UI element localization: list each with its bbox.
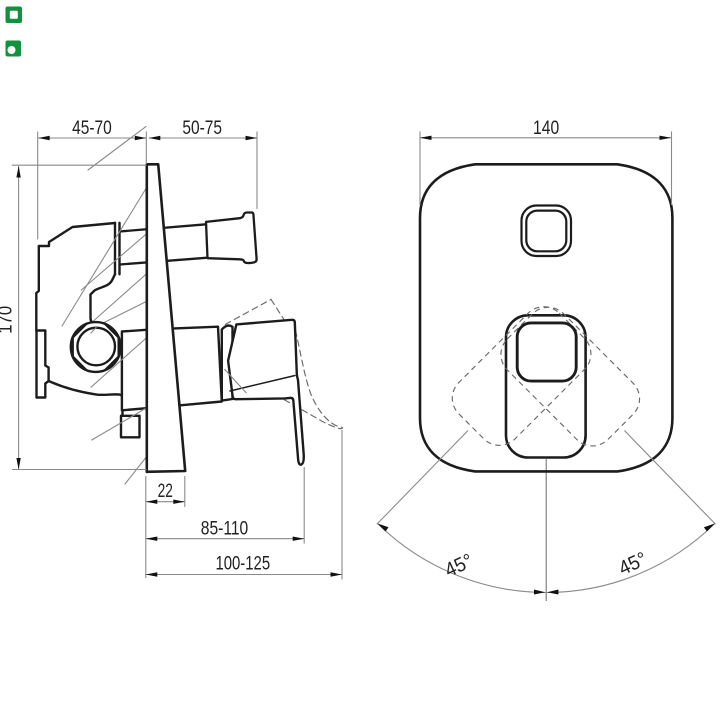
svg-text:22: 22	[158, 480, 173, 502]
svg-text:140: 140	[533, 117, 559, 139]
svg-text:170: 170	[0, 306, 16, 334]
svg-text:50-75: 50-75	[182, 117, 222, 139]
svg-text:85-110: 85-110	[201, 517, 249, 539]
svg-text:100-125: 100-125	[215, 553, 270, 575]
svg-text:45-70: 45-70	[72, 117, 112, 139]
